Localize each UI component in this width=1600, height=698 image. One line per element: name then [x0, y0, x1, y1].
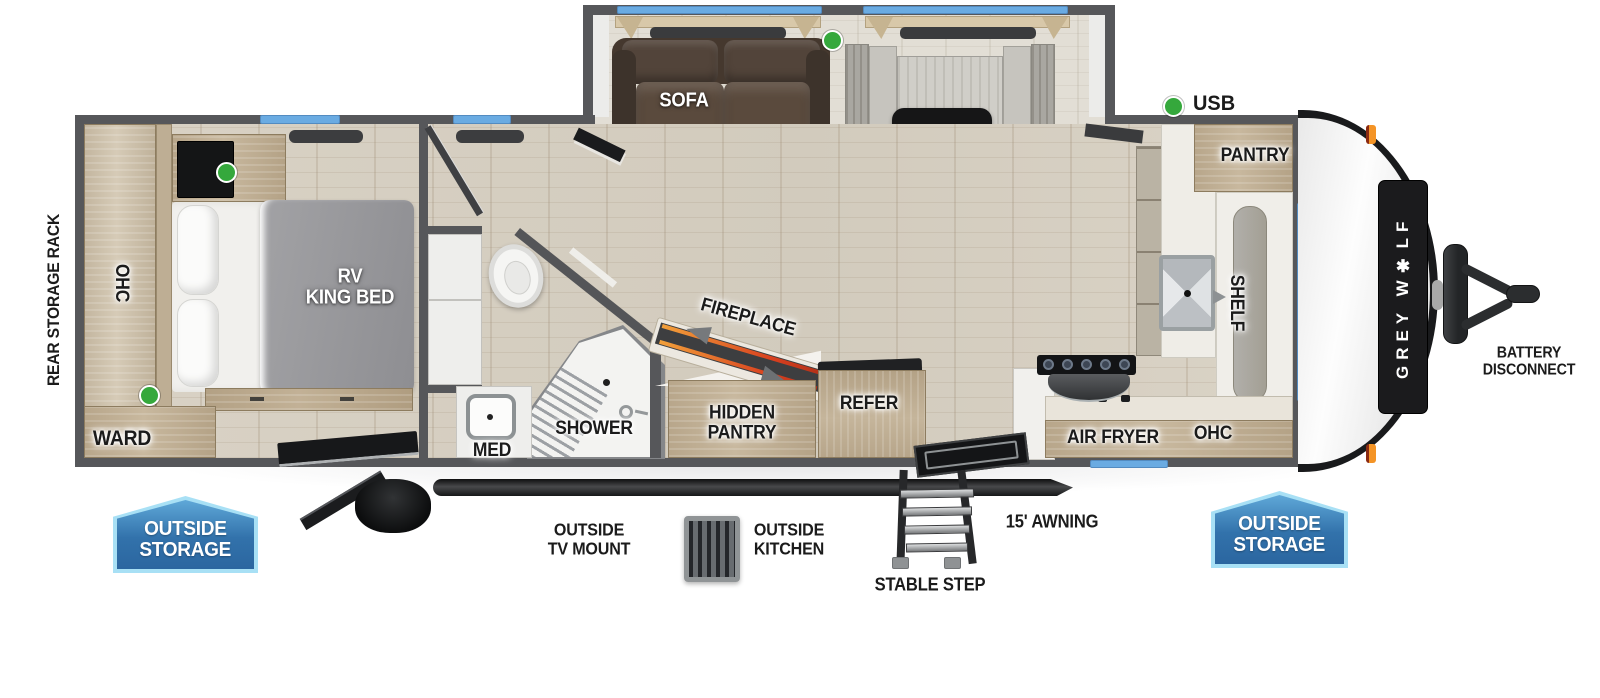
outside-kitchen-line1: OUTSIDE	[754, 520, 824, 539]
shower-living-wall	[650, 340, 661, 458]
outside-kitchen-label: OUTSIDE KITCHEN	[754, 520, 824, 557]
bed-pillow-top	[177, 205, 219, 295]
slideout-left-wall	[583, 5, 593, 125]
top-wall-front-section	[1112, 115, 1305, 124]
entry-door-window	[1090, 460, 1168, 468]
shower-faucet-handle	[635, 410, 648, 416]
kitchen-sink-drain	[1184, 290, 1191, 297]
slideout-end-wall-left	[593, 15, 609, 117]
bed-label-line2: KING BED	[306, 288, 394, 309]
shelf-label: SHELF	[1226, 275, 1246, 331]
slideout-end-wall-right	[1089, 15, 1105, 117]
outside-tv-mount-label: OUTSIDE TV MOUNT	[548, 520, 631, 557]
brand-panel: GREY W✱LF	[1378, 180, 1428, 414]
sofa-label: SOFA	[659, 90, 708, 111]
brand-logo: GREY W✱LF	[1379, 181, 1427, 413]
usb-dot-bedroom	[216, 162, 237, 183]
bathroom-window	[453, 115, 511, 124]
awning-tube	[433, 479, 1073, 496]
usb-dot-slideout	[822, 30, 843, 51]
med-label: MED	[473, 441, 511, 461]
bed-pillow-bottom	[177, 299, 219, 387]
marker-light-top	[1366, 125, 1376, 144]
rear-wall	[75, 115, 84, 467]
shelf-arrow	[1213, 290, 1226, 304]
slideout-right-wall	[1105, 5, 1115, 125]
stable-step-label: STABLE STEP	[875, 575, 986, 594]
badge-line2: STORAGE	[1234, 535, 1326, 556]
bath-cabinet-lower	[428, 300, 482, 385]
bedroom-ohc-label: OHC	[111, 264, 131, 302]
rear-storage-rack-label: REAR STORAGE RACK	[45, 214, 63, 386]
hidden-pantry-label: HIDDEN PANTRY	[708, 404, 777, 445]
awning-label: 15' AWNING	[1006, 512, 1099, 531]
badge-line1: OUTSIDE	[144, 519, 226, 540]
usb-legend-dot	[1163, 96, 1184, 117]
shower-label: SHOWER	[555, 419, 633, 439]
bedroom-window-valance	[289, 130, 363, 143]
refer-label: REFER	[840, 394, 898, 414]
shower-drain	[603, 379, 610, 386]
hidden-pantry-line2: PANTRY	[708, 424, 777, 444]
usb-dot-wardrobe	[139, 385, 160, 406]
stable-step-foot-right	[944, 557, 961, 569]
outside-tv-line1: OUTSIDE	[548, 520, 631, 539]
badge-line2: STORAGE	[140, 540, 232, 561]
outside-tv-mount-base	[355, 479, 431, 533]
hitch-coupler	[1506, 285, 1540, 303]
battery-line1: BATTERY	[1483, 345, 1575, 362]
bed-label: RV KING BED	[306, 267, 394, 310]
kitchen-ohc-label: OHC	[1194, 424, 1232, 444]
battery-line2: DISCONNECT	[1483, 362, 1575, 379]
hidden-pantry-line1: HIDDEN	[708, 404, 777, 424]
bedroom-bath-wall	[419, 124, 428, 458]
hitch-jack	[1432, 280, 1443, 310]
outside-storage-badge-front: OUTSIDE STORAGE	[1211, 491, 1348, 568]
bath-sink-faucet	[487, 414, 493, 420]
slideout-window-left	[617, 6, 822, 14]
marker-light-bottom	[1366, 444, 1376, 463]
slideout-window-right	[863, 6, 1068, 14]
bed-label-line1: RV	[306, 267, 394, 288]
stable-step-rung-2	[902, 506, 972, 516]
outside-storage-badge-rear: OUTSIDE STORAGE	[113, 496, 258, 573]
wardrobe-label: WARD	[93, 428, 151, 450]
stable-step-rung-1	[900, 488, 974, 498]
pantry-label: PANTRY	[1221, 146, 1290, 166]
outside-kitchen-grill	[684, 516, 740, 582]
bedroom-ohc-face	[156, 124, 172, 410]
badge-line1: OUTSIDE	[1238, 514, 1320, 535]
drawer-handle-b	[340, 397, 354, 401]
floorplan-diagram: SOFA DINETTE OHC RV KING BED WARD	[0, 0, 1600, 698]
counter-knob-b	[1121, 395, 1130, 402]
stable-step-rung-4	[906, 542, 968, 552]
air-fryer-label: AIR FRYER	[1067, 428, 1159, 448]
stable-step-rung-3	[904, 524, 970, 534]
outside-kitchen-line2: KITCHEN	[754, 539, 824, 558]
blind-right	[900, 27, 1036, 39]
outside-tv-line2: TV MOUNT	[548, 539, 631, 558]
drawer-handle-a	[250, 397, 264, 401]
bath-cabinet-upper	[428, 234, 482, 300]
usb-legend-label: USB	[1193, 92, 1235, 116]
underbed-drawers	[205, 388, 413, 411]
bathroom-window-valance	[456, 130, 524, 143]
stable-step-foot-left	[892, 557, 909, 569]
battery-disconnect-label: BATTERY DISCONNECT	[1483, 345, 1575, 378]
stove-cooktop	[1037, 355, 1136, 375]
kitchen-sink	[1159, 255, 1215, 331]
bedroom-window	[260, 115, 340, 124]
